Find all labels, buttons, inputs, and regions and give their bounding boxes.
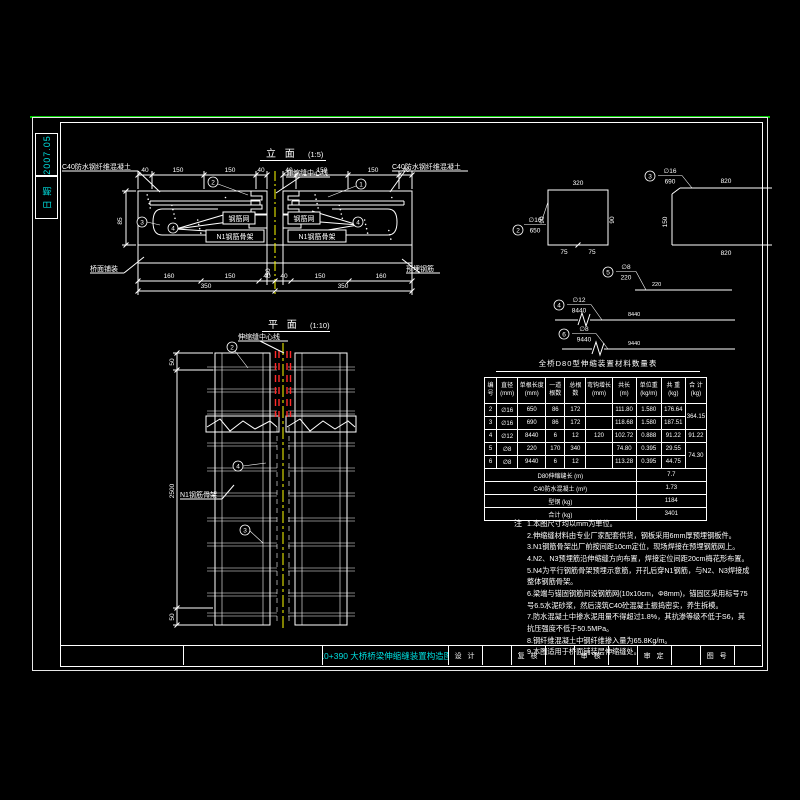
note-item: 4.N2、N3预埋筋沿伸缩缝方向布置，焊接定位间距20cm梅花形布置。 — [527, 553, 751, 565]
dim: 150 — [225, 167, 236, 174]
dim: 40 — [280, 273, 288, 280]
dim: 8440 — [628, 312, 640, 318]
date-label-box: 日 期 — [35, 175, 58, 219]
dim: 150 — [315, 273, 326, 280]
table-footer-row: C40防水混凝土 (m³) 1.73 — [485, 482, 707, 495]
notes-heading: 注 — [514, 518, 522, 531]
date-value-box: 2007.05 — [35, 133, 58, 177]
svg-text:3: 3 — [140, 220, 144, 227]
elevation-drawing: 立 面 (1:5) — [60, 145, 470, 310]
bar-spec: ∅16 — [529, 217, 542, 224]
field-drawing-no-value — [734, 646, 761, 665]
drawing-title: K0+390 大桥桥梁伸缩缝装置构造图 — [322, 646, 448, 665]
detail-bar-4: 8440 4 ∅12 8440 — [554, 297, 735, 326]
dim: 150 — [173, 167, 184, 174]
svg-text:4: 4 — [557, 303, 561, 310]
bar-spec: ∅8 — [579, 326, 589, 333]
table-row: 4∅12 84406 12120 102.720.888 91.2291.22 — [485, 430, 707, 443]
svg-text:4: 4 — [171, 226, 175, 233]
table-row: 6∅8 94406 12 113.280.395 44.75 — [485, 456, 707, 469]
dim-gap: 30 — [265, 268, 272, 276]
svg-text:3: 3 — [243, 528, 247, 535]
table-row: 3∅16 69086 172 118.681.580 187.51 — [485, 417, 707, 430]
dim: 160 — [376, 273, 387, 280]
note-item: 7.防水混凝土中掺水泥用量不得超过1.8%，其抗渗等级不低于S6，其抗压强度不低… — [527, 611, 751, 634]
field-drawing-no: 图 号 — [700, 646, 734, 665]
plan-leaders — [180, 341, 288, 499]
svg-text:2: 2 — [516, 228, 520, 235]
cad-canvas: 2007.05 日 期 立 面 (1:5) — [0, 0, 800, 800]
label-embed: 预埋钢筋 — [406, 264, 434, 273]
dim: 820 — [721, 178, 732, 185]
bar-length: 8440 — [572, 308, 587, 315]
mesh-label-left: 钢筋网 — [229, 214, 250, 223]
table-row: 2∅16 65086 172 111.801.580 176.64364.15 — [485, 404, 707, 417]
date-value: 2007.05 — [42, 135, 52, 175]
note-item: 5.N4为平行钢筋骨架预埋示意筋，开孔后穿N1钢筋，与N2、N3焊接成整体钢筋骨… — [527, 565, 751, 588]
dim: 75 — [588, 249, 596, 256]
dim: 2500 — [169, 483, 176, 498]
field-design-value — [482, 646, 511, 665]
dim: 90 — [609, 216, 616, 224]
notes-section: 注 1.本图尺寸均以mm为单位。2.伸缩缝材料由专业厂家配套供货，钢板采用6mm… — [527, 518, 751, 658]
elevation-title: 立 面 — [266, 147, 298, 160]
bar-length: 650 — [530, 228, 541, 235]
svg-text:6: 6 — [562, 332, 566, 339]
bar-spec: ∅12 — [573, 297, 586, 304]
table-footer-row: D80伸缩缝长 (m) 7.7 — [485, 469, 707, 482]
joint-profile-left — [251, 191, 267, 214]
material-table: 编 号直径 (mm) 单根长度 (mm)一道 根数 总根 数弯钩增长 (mm) … — [484, 377, 707, 521]
plan-view: 平 面 (1:10) — [80, 315, 380, 650]
label-c40-right: C40防水钢纤维混凝土 — [392, 162, 461, 171]
dim: 320 — [573, 180, 584, 187]
date-label: 日 期 — [40, 185, 53, 209]
detail-bar-2: 320 90 90 75 75 2 ∅16 650 — [513, 180, 616, 256]
field-check-value — [545, 646, 574, 665]
field-review-value — [608, 646, 637, 665]
material-table-section: 全桥D80型伸缩装置材料数量表 编 号直径 (mm) 单根长度 (mm)一道 根… — [484, 358, 712, 521]
dim: 50 — [169, 613, 176, 621]
plan-rebar-grid — [207, 353, 355, 625]
rebar-mesh-lines — [150, 201, 404, 205]
note-item: 2.伸缩缝材料由专业厂家配套供货，钢板采用6mm厚预埋钢板件。 — [527, 530, 751, 542]
svg-text:5: 5 — [606, 270, 610, 277]
detail-bar-6: 9440 6 ∅8 9440 — [559, 326, 735, 355]
elevation-scale: (1:5) — [308, 150, 324, 159]
dim: 150 — [225, 273, 236, 280]
dim: 85 — [117, 217, 124, 225]
dim: 9440 — [628, 341, 640, 347]
plan-label-centerline: 伸缩缝中心线 — [238, 332, 280, 341]
note-item: 6.梁端与锚固钢筋间设钢筋网(10x10cm，Φ8mm)，锚固区采用标号75号6… — [527, 588, 751, 611]
label-centerline: 伸缩缝中心线 — [286, 168, 328, 177]
table-header-row: 编 号直径 (mm) 单根长度 (mm)一道 根数 总根 数弯钩增长 (mm) … — [485, 378, 707, 404]
label-pavement: 桥面铺装 — [90, 264, 118, 273]
svg-text:2: 2 — [211, 180, 215, 187]
note-item: 1.本图尺寸均以mm为单位。 — [527, 518, 751, 530]
material-table-title: 全桥D80型伸缩装置材料数量表 — [496, 358, 700, 372]
label-c40-left: C40防水钢纤维混凝土 — [62, 162, 131, 171]
svg-text:4: 4 — [236, 464, 240, 471]
detail-bar-5: 220 5 ∅8 220 — [603, 264, 732, 290]
note-item: 3.N1钢筋骨架出厂前按间距10cm定位，现场焊接在预埋钢筋网上。 — [527, 541, 751, 553]
field-approve: 审 定 — [637, 646, 671, 665]
bar-spec: ∅16 — [664, 168, 677, 175]
svg-text:1: 1 — [359, 182, 363, 189]
n1-label-left: N1钢筋骨架 — [217, 232, 254, 241]
plan-label-n1: N1钢筋骨架 — [180, 490, 217, 499]
joint-strip — [276, 343, 291, 631]
titleblock-empty-1 — [60, 646, 183, 665]
dim: 220 — [652, 282, 661, 288]
titleblock-empty-2 — [183, 646, 322, 665]
svg-text:4: 4 — [356, 220, 360, 227]
plan-title: 平 面 — [268, 320, 300, 331]
plan-marks: 2 4 3 — [227, 342, 266, 543]
dim: 40 — [141, 167, 149, 174]
details-drawing: 320 90 90 75 75 2 ∅16 650 820 820 150 — [480, 150, 775, 370]
plan-break-marks — [206, 416, 356, 432]
table-row: 5∅8 220170 340 74.800.395 29.5574.30 — [485, 443, 707, 456]
svg-text:3: 3 — [648, 174, 652, 181]
dim: 40 — [257, 167, 265, 174]
bar-length: 220 — [621, 275, 632, 282]
dim: 75 — [560, 249, 568, 256]
plan-rungs — [207, 367, 355, 616]
table-footer-row: 型钢 (kg) 1184 — [485, 495, 707, 508]
mesh-label-right: 钢筋网 — [294, 214, 315, 223]
bar-length: 690 — [665, 179, 676, 186]
dim: 350 — [338, 283, 349, 290]
field-design: 设 计 — [448, 646, 482, 665]
notes-list: 1.本图尺寸均以mm为单位。2.伸缩缝材料由专业厂家配套供货，钢板采用6mm厚预… — [527, 518, 751, 658]
dim: 160 — [164, 273, 175, 280]
detail-bar-3: 820 820 150 3 ∅16 690 — [645, 168, 772, 257]
title-block: K0+390 大桥桥梁伸缩缝装置构造图 设 计 复 核 审 核 审 定 图 号 — [60, 645, 761, 665]
plan-scale: (1:10) — [310, 321, 330, 330]
elevation-height-dim — [122, 189, 136, 248]
plan-drawing: 平 面 (1:10) — [80, 315, 380, 650]
dim: 50 — [169, 358, 176, 366]
field-approve-value — [671, 646, 700, 665]
dim: 820 — [721, 250, 732, 257]
rebar-details: 320 90 90 75 75 2 ∅16 650 820 820 150 — [480, 150, 775, 370]
dim: 350 — [201, 283, 212, 290]
n1-label-right: N1钢筋骨架 — [299, 232, 336, 241]
field-review: 审 核 — [574, 646, 608, 665]
dim: 150 — [662, 216, 669, 227]
bar-length: 9440 — [577, 337, 592, 344]
joint-profile-right — [283, 191, 299, 214]
field-check: 复 核 — [511, 646, 545, 665]
elevation-view: 立 面 (1:5) — [60, 145, 470, 310]
dim: 150 — [368, 167, 379, 174]
svg-text:2: 2 — [230, 345, 234, 352]
bar-spec: ∅8 — [621, 264, 631, 271]
